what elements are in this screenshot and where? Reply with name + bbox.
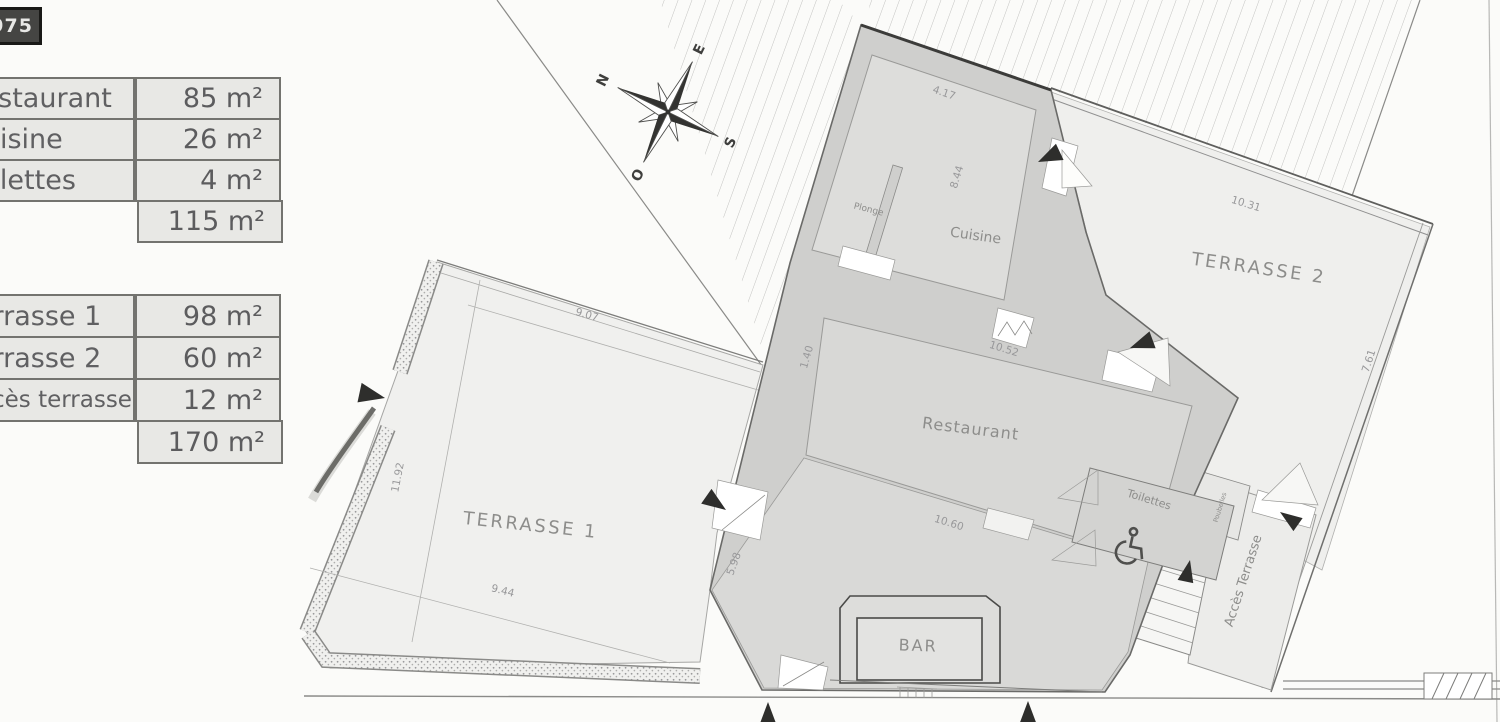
table-row: Accès terrasse 12 m² <box>0 378 283 422</box>
garden-gate-hatch <box>1424 673 1492 699</box>
row-label: Toilettes <box>0 159 135 202</box>
compass-west-label: O <box>628 166 648 184</box>
row-label: Accès terrasse <box>0 378 135 422</box>
total-value: 170 m² <box>137 420 283 464</box>
row-value: 85 m² <box>135 77 281 120</box>
bar-label: BAR <box>898 635 938 655</box>
row-value: 4 m² <box>135 159 281 202</box>
row-label: Terrasse 1 <box>0 294 135 338</box>
row-value: 60 m² <box>135 336 281 380</box>
row-label: Restaurant <box>0 77 135 120</box>
table-spacer <box>0 200 135 243</box>
page-edge-right <box>1489 0 1497 722</box>
table-row: Cuisine 26 m² <box>0 118 283 161</box>
table-row: Terrasse 2 60 m² <box>0 336 283 380</box>
street-line <box>304 696 1500 699</box>
row-label: Cuisine <box>0 118 135 161</box>
total-value: 115 m² <box>137 200 283 243</box>
row-label: Terrasse 2 <box>0 336 135 380</box>
table-row: Terrasse 1 98 m² <box>0 294 283 338</box>
plan-number-badge: 975 <box>0 7 42 45</box>
arrow-street-left-icon <box>759 702 777 722</box>
interior-areas-table: Restaurant 85 m² Cuisine 26 m² Toilettes… <box>0 77 283 243</box>
table-spacer <box>0 420 135 464</box>
arrow-street-right-icon <box>1019 701 1037 722</box>
row-value: 12 m² <box>135 378 281 422</box>
arrow-terrace1-west-icon <box>357 383 387 408</box>
table-total-row: 115 m² <box>0 200 283 243</box>
row-value: 98 m² <box>135 294 281 338</box>
table-row: Toilettes 4 m² <box>0 159 283 202</box>
terrace-areas-table: Terrasse 1 98 m² Terrasse 2 60 m² Accès … <box>0 294 283 464</box>
compass-north-label: N <box>594 72 614 90</box>
table-total-row: 170 m² <box>0 420 283 464</box>
row-value: 26 m² <box>135 118 281 161</box>
table-row: Restaurant 85 m² <box>0 77 283 120</box>
